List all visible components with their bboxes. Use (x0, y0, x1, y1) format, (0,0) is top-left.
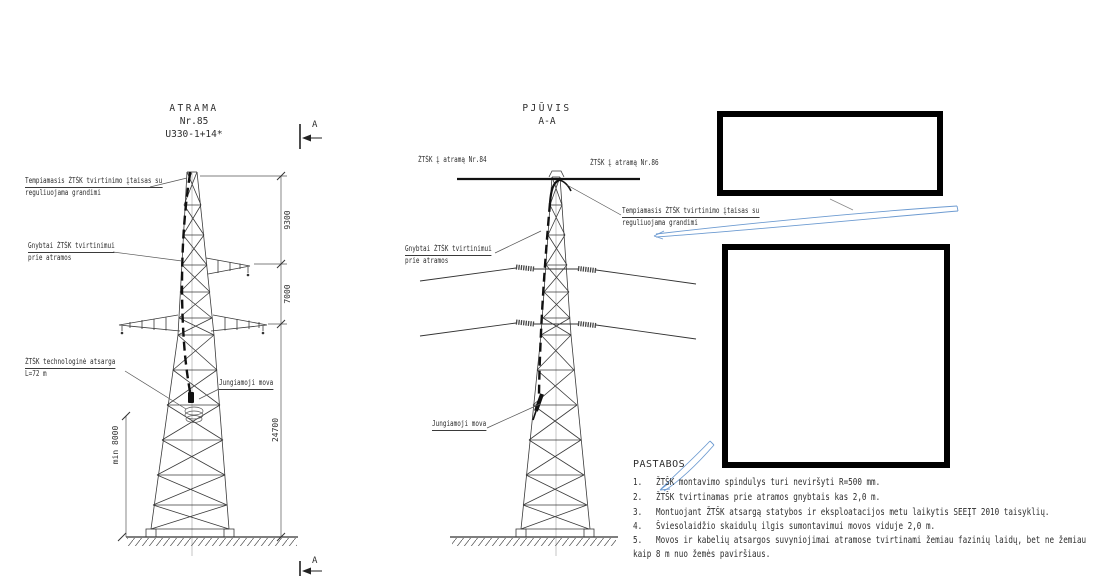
note-5-continuation: kaip 8 m nuo žemės paviršiaus. (633, 549, 770, 560)
section-marker-bottom (300, 561, 322, 576)
right-ground (450, 537, 618, 546)
note-2-text: ŽTŠK tvirtinamas prie atramos gnybtais k… (656, 492, 880, 503)
dimension-9300: 9300 (283, 190, 295, 250)
right-tower-lattice (516, 171, 594, 556)
left-view-title: ATRAMA Nr.85 U330-1+14* (134, 102, 254, 141)
drawing-sheet: ATRAMA Nr.85 U330-1+14* A A Tempiamasis … (0, 0, 1104, 576)
label-cable-to-nr86: ŽTŠK į atramą Nr.86 (590, 158, 659, 168)
left-view-title-line2: Nr.85 (134, 115, 254, 128)
notes-title: PASTABOS (633, 459, 685, 470)
left-tower-lattice (119, 172, 267, 556)
label-joint-left: Jungiamoji mova (219, 378, 273, 390)
left-view-title-line1: ATRAMA (134, 102, 254, 115)
right-tower-cable (457, 179, 640, 420)
left-ground (126, 537, 298, 546)
label-clamps-left: Gnybtai ŽTŠK tvirtinimui prie atramos (28, 241, 115, 263)
section-view-title-line2: A-A (507, 115, 587, 128)
note-5-text: Movos ir kabelių atsargos suvyniojimai a… (656, 535, 1086, 546)
note-5-number: 5. (633, 535, 642, 546)
note-3-number: 3. (633, 507, 642, 518)
label-cable-reserve-left: ŽTŠK technologinė atsarga L=72 m (25, 357, 115, 379)
note-1-text: ŽTŠK montavimo spindulys turi neviršyti … (656, 477, 880, 488)
label-joint-right: Jungiamoji mova (432, 419, 486, 431)
note-1-number: 1. (633, 477, 642, 488)
redaction-box-top (717, 111, 943, 196)
note-4-text: Šviesolaidžio skaidulų ilgis sumontavimu… (656, 521, 935, 532)
left-leader-lines (113, 178, 219, 409)
dimension-min-8000: min 8000 (111, 415, 123, 475)
left-view-title-line3: U330-1+14* (134, 128, 254, 141)
note-4-number: 4. (633, 521, 642, 532)
section-a-label-top: A (312, 120, 317, 130)
note-3-text: Montuojant ŽTŠK atsargą statybos ir eksp… (656, 507, 1050, 518)
label-clamps-right: Gnybtai ŽTŠK tvirtinimui prie atramos (405, 244, 492, 266)
note-2-number: 2. (633, 492, 642, 503)
label-tension-device-right: Tempiamasis ŽTŠK tvirtinimo įtaisas su r… (622, 206, 759, 228)
section-view-title: PJŪVIS A-A (507, 102, 587, 128)
label-cable-to-nr84: ŽTŠK į atramą Nr.84 (418, 155, 487, 165)
section-a-label-bottom: A (312, 556, 317, 566)
redaction-box-bottom (722, 244, 950, 468)
dimension-7000: 7000 (283, 264, 295, 324)
section-view-title-line1: PJŪVIS (507, 102, 587, 115)
label-tension-device-left: Tempiamasis ŽTŠK tvirtinimo įtaisas su r… (25, 176, 162, 198)
dimension-24700: 24700 (271, 400, 283, 460)
section-marker-top (300, 124, 322, 149)
